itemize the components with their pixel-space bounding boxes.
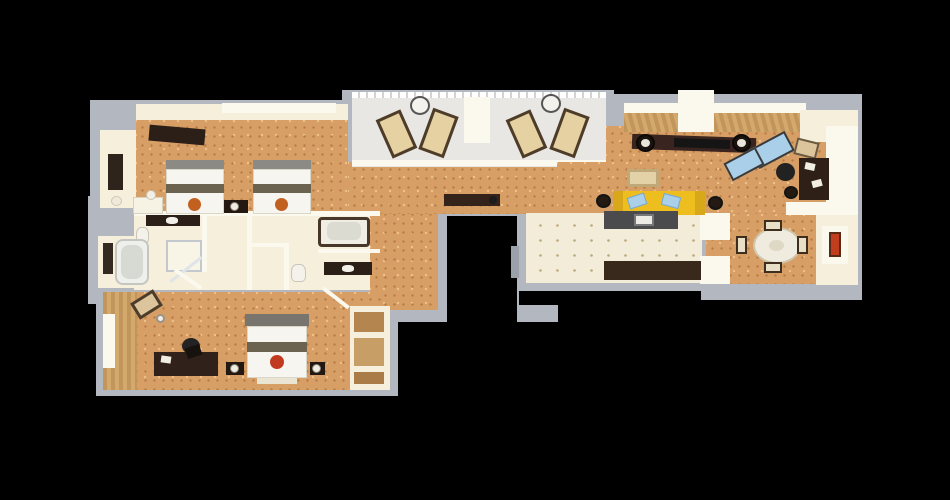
- bedroom1-entry-stool: [111, 196, 122, 206]
- art-niche-red-panel: [829, 232, 841, 257]
- bedroom1-entry-minibar: [108, 154, 123, 190]
- room-kitchen: [526, 213, 702, 283]
- room-entry-alcove: [447, 216, 517, 322]
- room-office-nook: [770, 140, 828, 202]
- room-bathroom-1: [98, 214, 248, 290]
- room-bedroom-1-twin-beds: [136, 104, 348, 216]
- room-walk-in-closet: [350, 306, 390, 390]
- living-north-window: [624, 103, 806, 113]
- floorplan-render: [0, 0, 950, 500]
- room-bedroom-2-master: [103, 292, 381, 390]
- room-dining-area: [706, 214, 816, 284]
- desk-nook-east-wall: [826, 126, 858, 206]
